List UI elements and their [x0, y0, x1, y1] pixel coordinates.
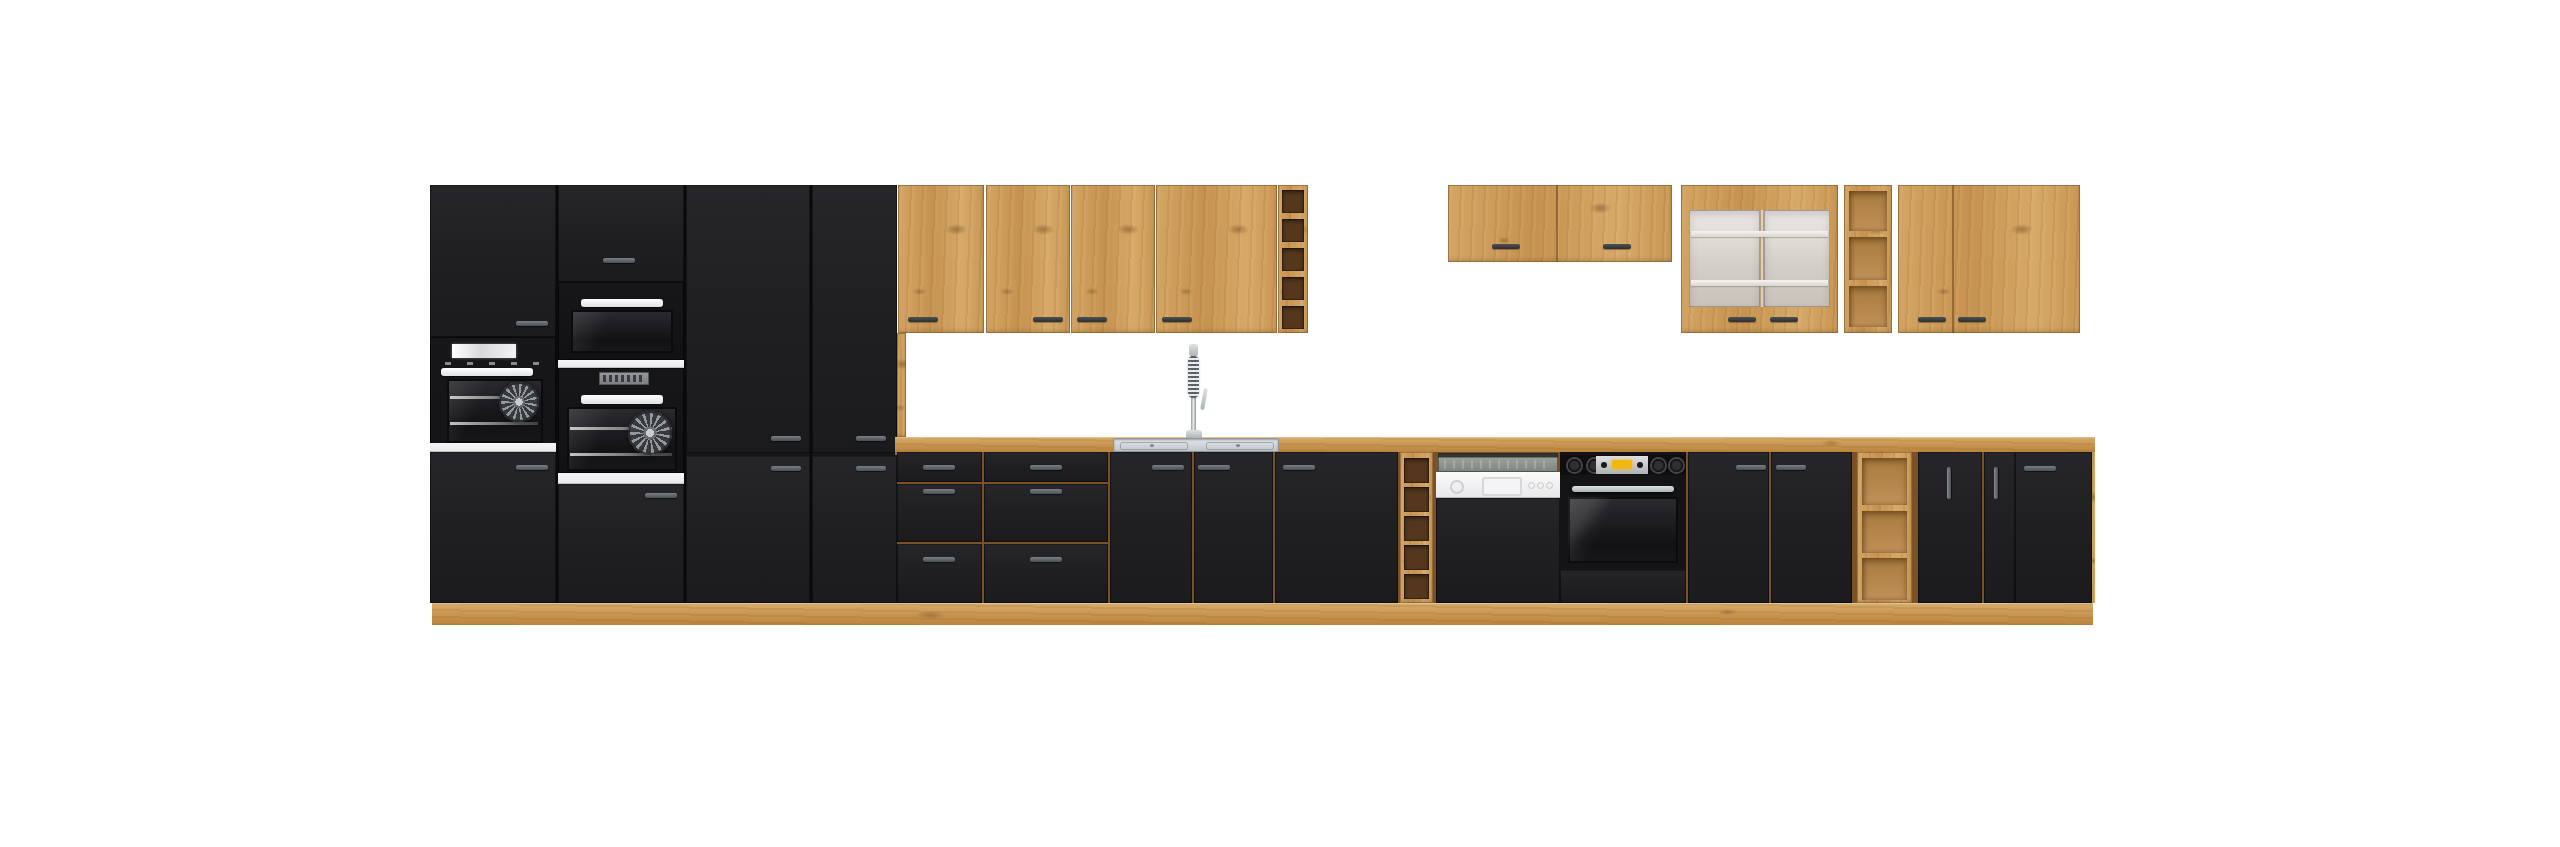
tall-b-lower-door-handle [645, 493, 677, 498]
inset-sink [1113, 438, 1279, 452]
wine-rack-cubby [1404, 516, 1429, 541]
drawer-handle [923, 557, 955, 562]
glass-display-cabinet [1681, 185, 1838, 333]
base-cabinet-door-wide [1275, 452, 1398, 603]
wall-cabinet-door [1071, 185, 1155, 333]
wine-rack-cubby [1404, 487, 1429, 512]
sink-cabinet-door [1110, 452, 1192, 603]
dishwasher-power-button [1450, 480, 1464, 494]
drawer-front [897, 544, 982, 603]
base-door-handle [1283, 465, 1315, 470]
oven-a-display [452, 344, 516, 358]
base-cabinet-door-wide [2015, 452, 2092, 603]
oven-a-handle-bar [441, 368, 533, 376]
wine-rack-cubby [1282, 219, 1304, 242]
wall-wine-rack [1278, 185, 1308, 333]
open-shelf-cubby [1849, 286, 1887, 327]
tall-d-lower-door [812, 456, 897, 603]
dishwasher-tub [1438, 453, 1558, 472]
glass-door-handle [1728, 317, 1756, 322]
dishwasher-handle-recess [1482, 477, 1522, 496]
oven-knob [1568, 459, 1581, 472]
tall-c-upper-door-handle [771, 436, 801, 441]
dishwasher-button [1537, 482, 1544, 489]
sink-door-handle [1152, 465, 1184, 470]
wall-door-handle [908, 317, 938, 322]
oven-display-plate [1596, 456, 1648, 474]
wine-rack-cubby [1282, 248, 1304, 271]
dishwasher-button [1528, 482, 1535, 489]
glass-door-handle [1770, 317, 1798, 322]
sink-cabinet-door [1194, 452, 1273, 603]
faucet-spring-coil [1188, 356, 1199, 398]
wall-cabinet-door-wide [1156, 185, 1277, 333]
oven-door-glass [1568, 497, 1678, 563]
wine-rack-cubby [1404, 574, 1429, 599]
tall-d-upper-door [812, 185, 897, 453]
drawer-handle [1030, 465, 1062, 470]
tall-b-upper-door-handle [603, 258, 635, 263]
wall-open-shelf-unit [1844, 185, 1892, 333]
glass-cabinet-shelf [1691, 280, 1828, 286]
tall-c-upper-door [686, 185, 810, 453]
base-cabinet-door [1771, 452, 1852, 603]
under-counter-oven [1560, 452, 1686, 603]
base-door-vertical-handle [1947, 467, 1951, 499]
faucet-head [1189, 344, 1198, 356]
oven-lower-front [1560, 570, 1686, 603]
drawer-handle [923, 489, 955, 494]
base-door-vertical-handle [1994, 467, 1998, 499]
wall-cabinet-door [986, 185, 1070, 333]
frosted-glass-pane [1764, 210, 1830, 307]
compact-oven-b [558, 282, 684, 360]
wall-door-handle [1492, 244, 1520, 249]
compact-oven-glass [571, 310, 673, 353]
base-cabinet-run [897, 452, 2095, 603]
dishwasher [1436, 452, 1560, 603]
base-wine-rack [1400, 452, 1433, 603]
oven-control-panel [1560, 455, 1686, 475]
tall-a-lower-door-handle [516, 465, 548, 470]
tall-run-oak-side-panel [897, 333, 906, 437]
faucet-base [1186, 430, 1202, 438]
oven-a-control-row [445, 362, 541, 365]
oven-a-shelf-line [450, 422, 538, 425]
wine-rack-cubby [1282, 277, 1304, 300]
open-shelf-cubby [1862, 511, 1907, 553]
oven-knob [1652, 459, 1665, 472]
carcass-strip [558, 473, 684, 484]
base-open-shelf-unit [1857, 452, 1912, 603]
tall-d-lower-door-handle [856, 466, 886, 471]
tall-d-upper-door-handle [856, 436, 886, 441]
wine-rack-cubby [1282, 306, 1304, 329]
faucet-lever [1200, 388, 1208, 410]
tall-b-upper-door [558, 185, 684, 282]
frosted-glass-pane [1689, 210, 1760, 307]
dishwasher-button [1546, 482, 1553, 489]
tall-a-lower-door [430, 452, 556, 603]
tall-c-lower-door-handle [771, 466, 801, 471]
base-cabinet-door [1688, 452, 1769, 603]
built-in-oven-b [558, 368, 684, 473]
tall-b-lower-door [558, 484, 684, 603]
wall-door-handle [1958, 317, 1986, 322]
wine-rack-cubby [1404, 545, 1429, 570]
oven-handle-bar [1572, 486, 1674, 492]
base-door-handle [1736, 465, 1766, 470]
tall-a-upper-door-handle [516, 321, 548, 326]
wall-door-handle [1077, 317, 1107, 322]
dishwasher-control-panel [1436, 472, 1560, 498]
open-shelf-cubby [1849, 191, 1887, 231]
oven-a-fan [499, 382, 539, 422]
wall-door-handle [1918, 317, 1946, 322]
oven-a-door-glass [447, 379, 543, 443]
product-image [0, 0, 2560, 847]
door-seam [1952, 185, 1954, 333]
wall-cabinet-door [898, 185, 984, 333]
open-shelf-cubby [1862, 458, 1907, 505]
oven-b-display [599, 372, 649, 385]
wine-rack-cubby [1282, 190, 1304, 213]
base-run-end-panel [2092, 452, 2095, 603]
open-shelf-cubby [1849, 237, 1887, 280]
open-shelf-cubby [1862, 558, 1907, 600]
drawer-front [984, 544, 1108, 603]
oven-b-door-glass [567, 407, 677, 471]
oven-knob [1670, 459, 1683, 472]
glass-pane-divider [1760, 210, 1764, 307]
oven-amber-display [1612, 460, 1632, 469]
wall-door-handle [1603, 244, 1631, 249]
base-door-handle [2024, 466, 2056, 471]
glass-cabinet-shelf [1691, 231, 1828, 237]
drawer-handle [923, 465, 955, 470]
drawer-handle [1030, 557, 1062, 562]
tall-a-upper-door [430, 185, 556, 337]
wall-cabinet-right [1898, 185, 2080, 333]
oven-b-handle-bar [581, 395, 663, 404]
tall-c-lower-door [686, 456, 810, 603]
tall-cabinet-run [430, 185, 897, 603]
wall-door-handle [1162, 317, 1192, 322]
carcass-strip [558, 360, 684, 368]
carcass-strip [430, 443, 556, 452]
wall-cabinet-short [1448, 185, 1672, 262]
plinth [432, 603, 2093, 625]
drawer-handle [1030, 489, 1062, 494]
door-seam [1556, 185, 1558, 262]
dishwasher-door-panel [1436, 498, 1560, 603]
spring-faucet [1178, 342, 1218, 438]
compact-oven-handle-bar [581, 299, 663, 307]
wine-rack-cubby [1404, 458, 1429, 483]
oven-b-fan [628, 411, 672, 455]
base-door-handle [1776, 465, 1806, 470]
base-cabinet-door-narrow [1984, 452, 2015, 603]
sink-door-handle [1198, 465, 1230, 470]
wall-door-handle [1033, 317, 1063, 322]
